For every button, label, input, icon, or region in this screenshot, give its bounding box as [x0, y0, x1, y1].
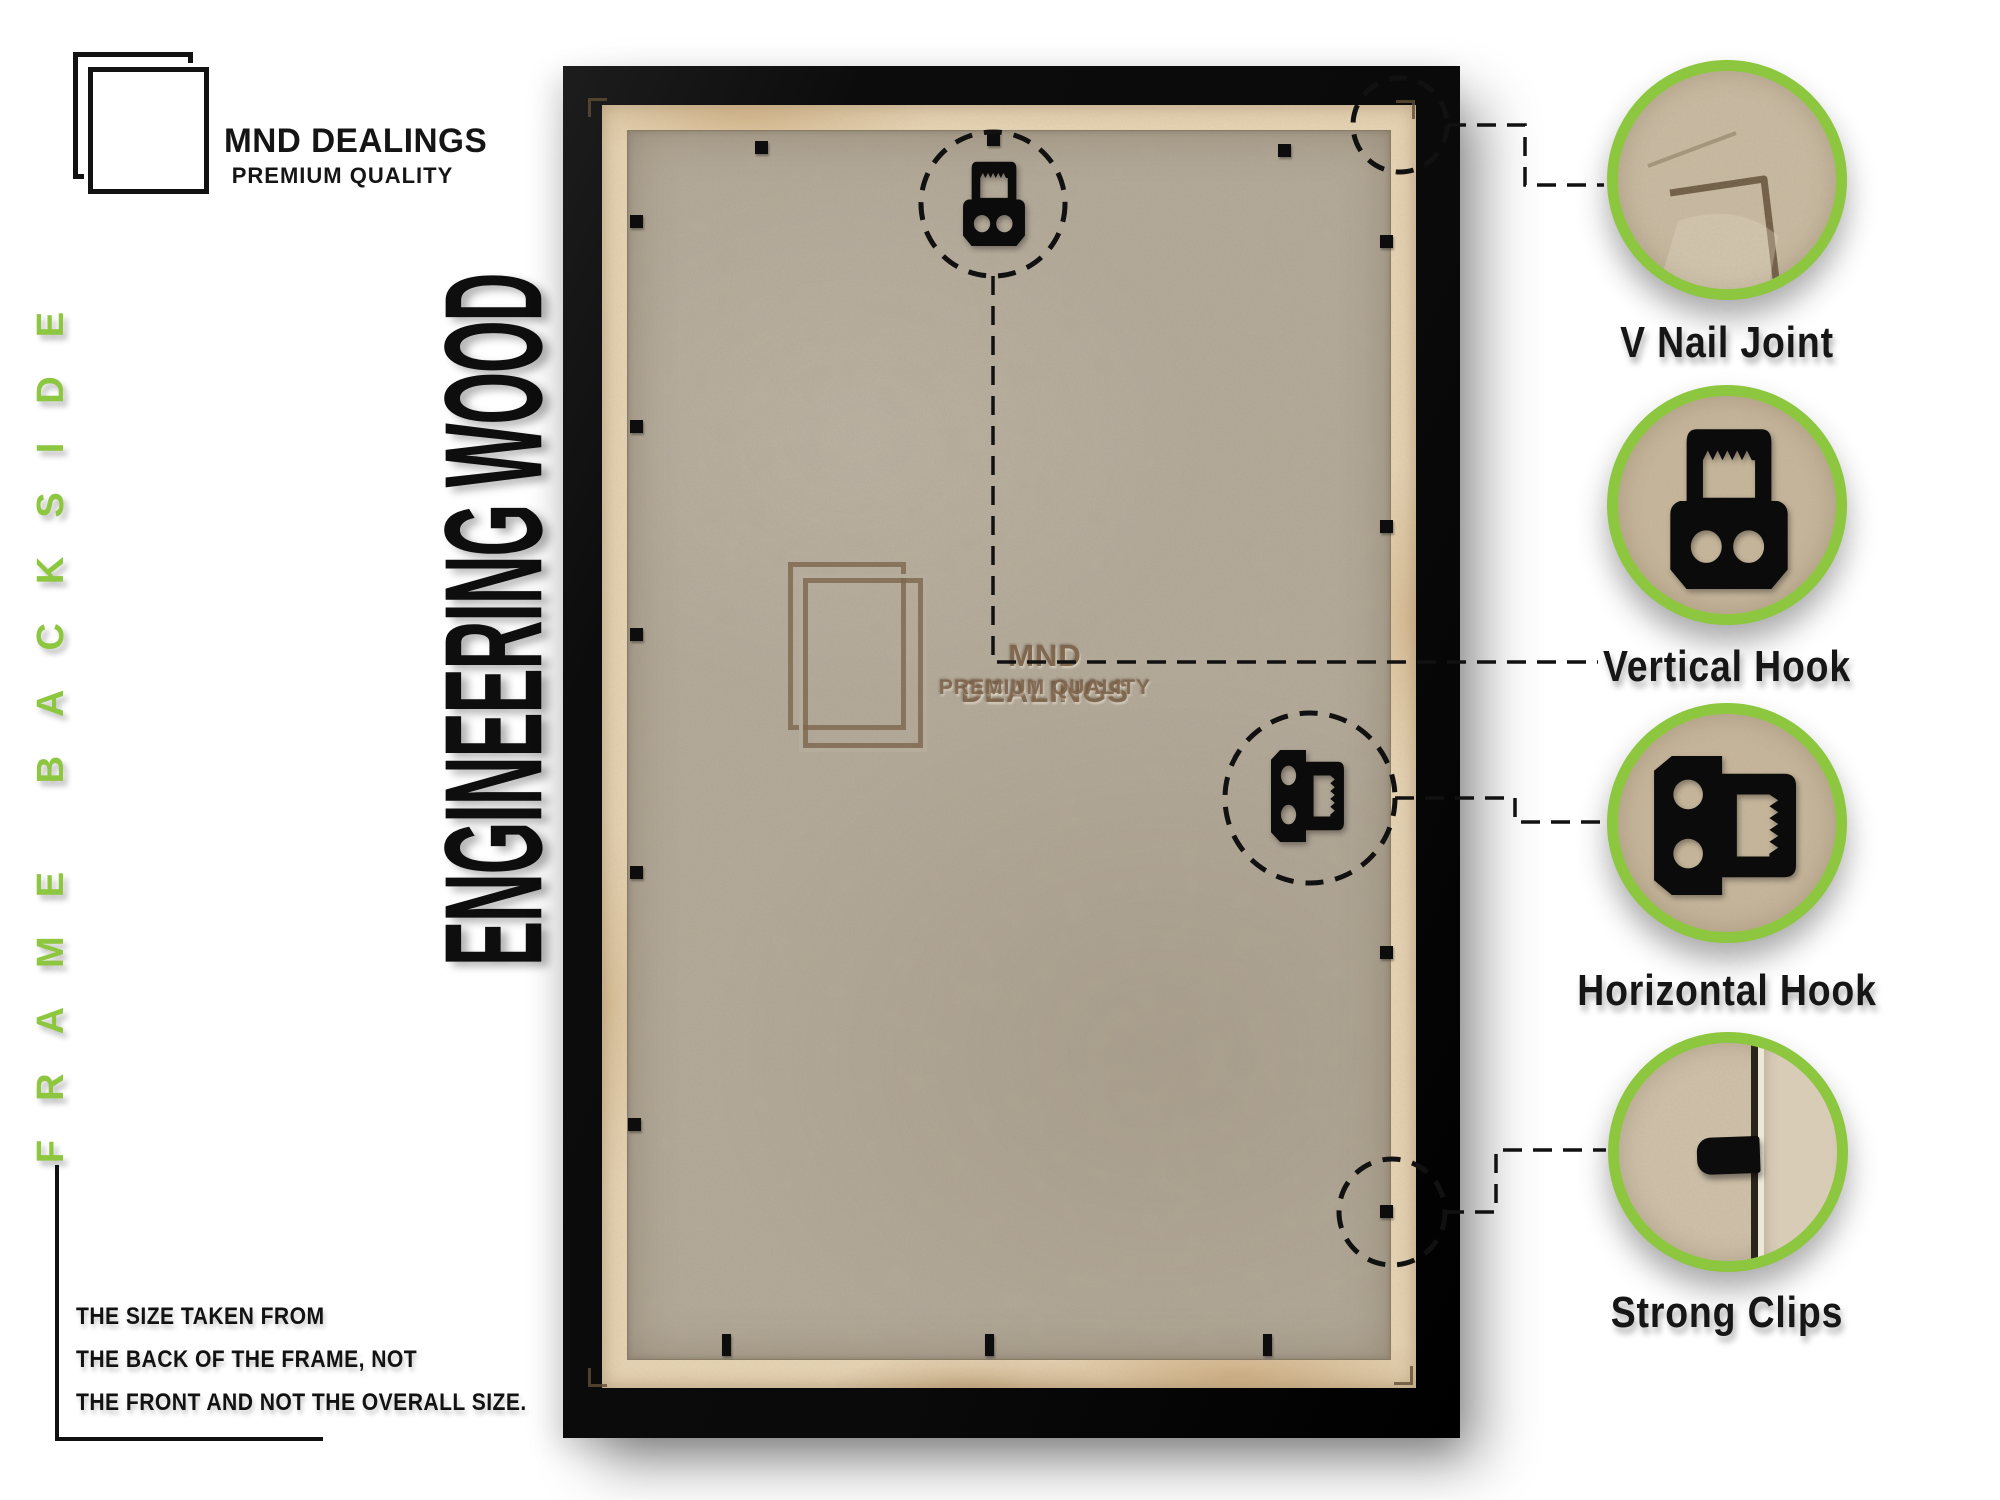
- clip-marker: [755, 141, 768, 154]
- size-note-line-3: THE FRONT AND NOT THE OVERALL SIZE.: [76, 1389, 527, 1417]
- corner-joint-mark-bottom-right: [1394, 1366, 1413, 1385]
- callout-label-horizontal-hook: Horizontal Hook: [1540, 966, 1914, 1016]
- brand-tagline: PREMIUM QUALITY: [225, 163, 460, 189]
- clip-marker: [1380, 946, 1393, 959]
- horizontal-hook-icon: [1654, 756, 1802, 895]
- clip-marker: [1263, 1334, 1272, 1356]
- callout-circle-strong-clips: [1608, 1032, 1848, 1272]
- callout-circle-vertical-hook: [1607, 385, 1847, 625]
- clip-marker: [628, 1118, 641, 1131]
- callout-circle-horizontal-hook: [1607, 703, 1847, 943]
- clip-marker: [630, 866, 643, 879]
- note-border-vertical-line: [55, 1165, 59, 1440]
- vertical-hook-icon: [1670, 426, 1788, 589]
- note-border-horizontal-line: [55, 1437, 323, 1441]
- callout-label-vertical-hook: Vertical Hook: [1540, 642, 1914, 692]
- v-nail-joint-groove-icon: [1618, 71, 1836, 289]
- brand-logo-front-frame-icon: [88, 67, 209, 194]
- corner-joint-mark-top-right: [1396, 100, 1415, 119]
- callout-label-v-nail-joint: V Nail Joint: [1540, 318, 1914, 368]
- callout-circle-v-nail-joint: [1607, 60, 1847, 300]
- clip-marker: [1380, 520, 1393, 533]
- size-note-line-1: THE SIZE TAKEN FROM: [76, 1303, 325, 1331]
- horizontal-hook-hardware-icon: [1271, 750, 1347, 842]
- callout-label-strong-clips: Strong Clips: [1540, 1288, 1914, 1338]
- frame-inner-lip: [602, 105, 1416, 1388]
- clip-marker: [987, 133, 1000, 146]
- corner-joint-mark-bottom-left: [588, 1368, 607, 1387]
- clip-marker: [630, 420, 643, 433]
- mdf-backing-board: [627, 130, 1391, 1360]
- engineering-wood-label: ENGINEERING WOOD: [425, 246, 564, 994]
- strong-clip-icon: [1697, 1136, 1761, 1175]
- frame-edge-detail: [1756, 1043, 1837, 1261]
- clip-marker: [1380, 235, 1393, 248]
- clip-marker: [630, 215, 643, 228]
- clip-marker: [722, 1334, 731, 1356]
- clip-marker: [985, 1334, 994, 1356]
- clip-marker: [630, 628, 643, 641]
- brand-name: MND DEALINGS: [224, 122, 487, 161]
- watermark-brand-tagline: PREMIUM QUALITY: [930, 676, 1160, 700]
- frame-backside-label: FRAME BACKSIDE: [27, 268, 75, 1168]
- clip-marker: [1380, 1205, 1393, 1218]
- corner-joint-mark-top-left: [588, 98, 607, 117]
- size-note-line-2: THE BACK OF THE FRAME, NOT: [76, 1346, 417, 1374]
- clip-marker: [1278, 144, 1291, 157]
- frame-backside-infographic: MND DEALINGS PREMIUM QUALITY FRAME BACKS…: [0, 0, 2000, 1500]
- vertical-hook-hardware-icon: [963, 160, 1025, 246]
- watermark-logo-front-frame-icon: [803, 578, 923, 748]
